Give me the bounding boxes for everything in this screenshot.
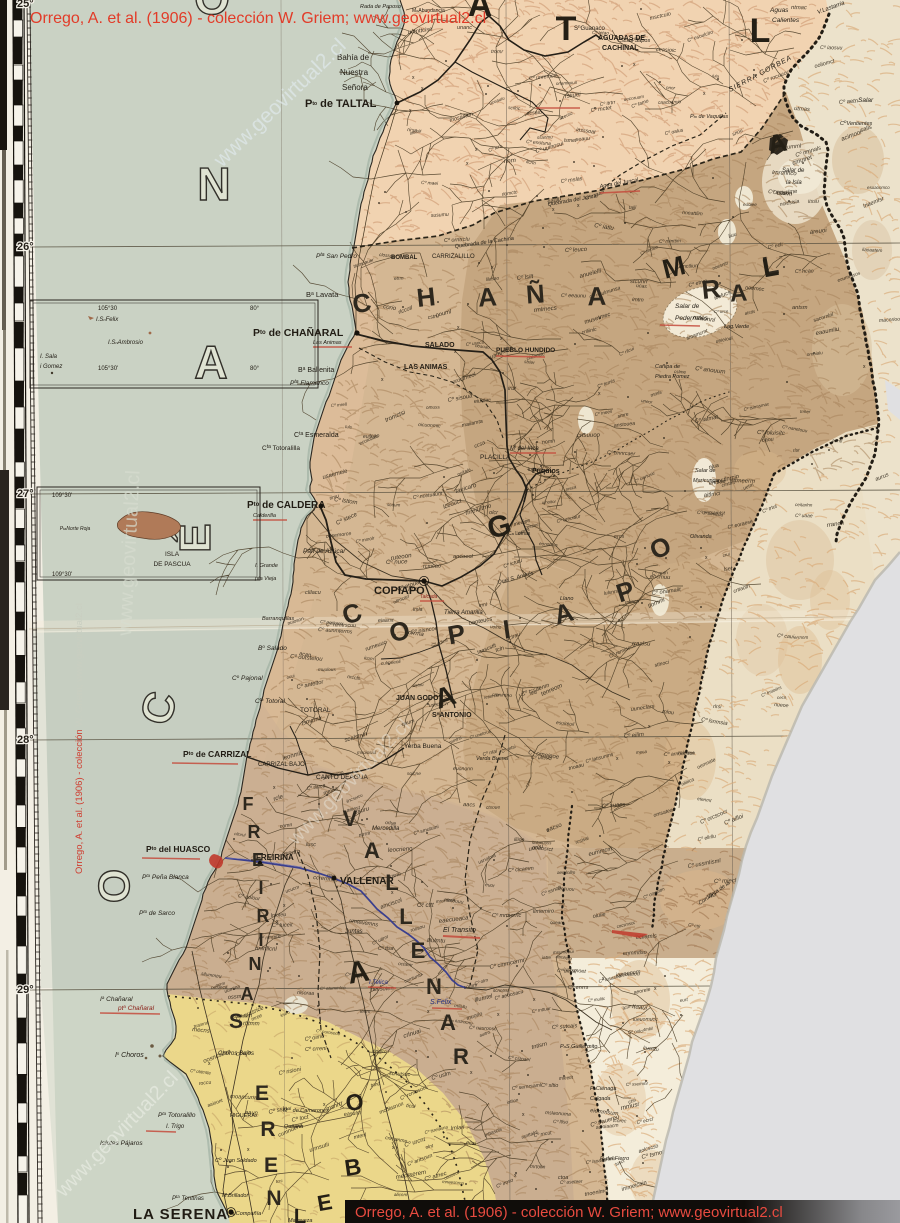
svg-text:I.SnAmbrosio: I.SnAmbrosio [108, 340, 144, 346]
svg-text:80°: 80° [250, 306, 260, 312]
svg-text:T: T [556, 10, 577, 48]
svg-text:Nuestra: Nuestra [340, 68, 369, 77]
svg-text:auntl: auntl [832, 438, 843, 444]
svg-text:Pto del HUASCO: Pto del HUASCO [146, 844, 211, 854]
svg-text:Yerba Buena: Yerba Buena [404, 743, 442, 750]
svg-text:caacuamio: caacuamio [658, 99, 682, 106]
svg-text:aacs: aacs [463, 802, 475, 809]
svg-text:L: L [294, 1206, 306, 1223]
svg-text:Maricunga: Maricunga [693, 478, 719, 484]
svg-text:Ñ: Ñ [525, 278, 546, 309]
svg-text:aemlnllm: aemlnllm [557, 870, 576, 875]
svg-text:Barranquillas: Barranquillas [262, 616, 294, 622]
svg-text:Salar de: Salar de [675, 303, 700, 310]
svg-text:Cº cttt: Cº cttt [417, 902, 434, 909]
svg-text:E: E [255, 1082, 269, 1105]
svg-text:I.SnFelix: I.SnFelix [96, 317, 119, 323]
svg-text:Las Animas: Las Animas [313, 340, 342, 346]
svg-text:N: N [249, 954, 262, 974]
svg-text:rinm: rinm [504, 157, 517, 165]
svg-text:rraalsu: rraalsu [632, 641, 651, 648]
svg-text:Co Juan Soldado: Co Juan Soldado [215, 1156, 257, 1164]
svg-text:ecsi: ecsi [466, 1140, 477, 1147]
svg-text:iliioe: iliioe [514, 837, 525, 843]
svg-text:Cº enrrs: Cº enrrs [568, 984, 589, 991]
svg-text:N: N [426, 974, 442, 999]
svg-text:BOMBAL: BOMBAL [391, 255, 418, 261]
svg-text:la Isla: la Isla [786, 180, 802, 186]
svg-text:soicne: soicne [407, 771, 421, 777]
svg-text:oauou: oauou [625, 971, 640, 978]
svg-text:imtm: imtm [632, 297, 644, 304]
svg-text:ilaoaatem: ilaoaatem [862, 247, 883, 253]
svg-text:Aguas: Aguas [769, 7, 789, 14]
svg-text:Cº cuion: Cº cuion [773, 190, 792, 197]
svg-text:antsm: antsm [792, 305, 808, 311]
svg-text:tcorec: tcorec [613, 1118, 627, 1124]
svg-text:Puquios: Puquios [532, 468, 560, 475]
svg-text:Verda Buena: Verda Buena [476, 756, 508, 762]
svg-text:eros: eros [614, 534, 625, 540]
svg-text:Salar de: Salar de [695, 468, 716, 474]
svg-text:nueoe: nueoe [774, 702, 789, 709]
svg-text:Cº nntn: Cº nntn [652, 570, 669, 577]
svg-text:scaum: scaum [387, 502, 401, 507]
svg-text:Ml del Inca: Ml del Inca [510, 444, 539, 452]
svg-text:pta Vieja: pta Vieja [254, 576, 276, 582]
svg-text:nnor: nnor [666, 85, 676, 90]
svg-text:Cº eeaunu: Cº eeaunu [561, 293, 586, 299]
svg-text:lnioteu: lnioteu [271, 912, 287, 919]
svg-text:etrm: etrm [394, 276, 404, 282]
svg-text:R: R [248, 822, 261, 842]
svg-text:Pedernales: Pedernales [675, 315, 709, 322]
svg-text:iuia: iuia [712, 73, 720, 79]
svg-text:A: A [440, 1010, 456, 1035]
svg-text:alicnm: alicnm [394, 1192, 408, 1197]
svg-text:Orrego, A. et al. (1906) - col: Orrego, A. et al. (1906) - colección W. … [30, 10, 486, 27]
svg-text:crtsuuoo: crtsuuoo [577, 433, 601, 439]
svg-text:rlsr: rlsr [793, 448, 801, 454]
svg-text:Orrego, A. et al. (1906) - col: Orrego, A. et al. (1906) - colección W. … [355, 1204, 783, 1221]
svg-text:Tierra Amarilla: Tierra Amarilla [444, 610, 483, 616]
svg-text:ettmeerm: ettmeerm [730, 478, 755, 485]
svg-text:muulous: muulous [318, 667, 336, 672]
svg-text:Ia Chañaral: Ia Chañaral [100, 995, 133, 1003]
svg-text:A: A [477, 281, 498, 312]
svg-text:errnnm: errnnm [794, 635, 809, 640]
svg-text:cmnintno: cmnintno [492, 692, 512, 699]
svg-text:I.Telica: I.Telica [369, 980, 388, 986]
svg-text:El Transito: El Transito [443, 927, 476, 934]
svg-text:irur: irur [508, 386, 518, 392]
svg-text:E: E [252, 850, 264, 870]
svg-text:Mercedilla: Mercedilla [372, 826, 400, 832]
svg-text:PLACILLA: PLACILLA [480, 454, 511, 461]
svg-text:Cº ttsa: Cº ttsa [378, 946, 394, 952]
svg-text:A: A [241, 984, 254, 1004]
svg-text:tuls: tuls [345, 424, 353, 430]
svg-text:trmer: trmer [800, 409, 811, 414]
svg-text:ancoeol: ancoeol [453, 554, 474, 560]
svg-text:Pto de CHAÑARAL: Pto de CHAÑARAL [253, 326, 344, 339]
svg-text:ceitarlnn: ceitarlnn [795, 502, 813, 508]
svg-text:Piedra Pomez: Piedra Pomez [655, 374, 690, 380]
svg-text:Choros Bajos: Choros Bajos [218, 1051, 254, 1057]
svg-text:i Gomez: i Gomez [40, 364, 62, 370]
svg-text:rcmcao: rcmcao [423, 563, 441, 570]
svg-text:Cº minttim: Cº minttim [659, 238, 681, 245]
svg-text:Talcada: Talcada [420, 594, 438, 600]
svg-text:80°: 80° [250, 366, 260, 372]
svg-text:DE PASCUA: DE PASCUA [153, 561, 191, 568]
svg-text:stcunrr: stcunrr [630, 279, 649, 285]
svg-text:26°: 26° [17, 241, 34, 253]
svg-text:utmas: utmas [794, 106, 810, 113]
svg-text:Cº utissel: Cº utissel [531, 755, 553, 761]
svg-text:Juntas: Juntas [344, 929, 363, 935]
svg-text:esuaonmco: esuaonmco [867, 185, 890, 190]
svg-text:A: A [364, 838, 380, 863]
svg-text:28°: 28° [17, 734, 34, 746]
svg-text:R: R [260, 1118, 275, 1141]
svg-text:tromr: tromr [491, 49, 503, 55]
svg-text:euononn: euononn [453, 766, 473, 772]
svg-text:clilacu: clilacu [305, 590, 322, 596]
svg-text:itcnntrsl: itcnntrsl [493, 988, 510, 993]
svg-text:mrtolm: mrtolm [530, 1164, 545, 1171]
svg-text:29°: 29° [17, 984, 34, 996]
svg-text:E: E [264, 1154, 278, 1177]
svg-text:ienm: ienm [360, 1009, 370, 1015]
svg-text:nisoraa: nisoraa [297, 990, 314, 997]
svg-text:Cº ltlsu: Cº ltlsu [553, 1119, 569, 1126]
svg-text:I: I [258, 930, 263, 950]
svg-text:LA SERENA: LA SERENA [133, 1206, 228, 1223]
svg-text:N: N [266, 1187, 281, 1210]
svg-text:S.Felix: S.Felix [430, 999, 452, 1006]
svg-text:Cº mrmerric: Cº mrmerric [492, 912, 521, 919]
svg-text:lmlarl: lmlarl [451, 1125, 466, 1132]
svg-text:O: O [90, 869, 139, 903]
svg-text:iissu: iissu [808, 199, 819, 205]
svg-text:lllulmtu: lllulmtu [427, 938, 446, 945]
svg-text:Cº uaae: Cº uaae [795, 513, 813, 519]
svg-text:iatre: iatre [542, 955, 551, 960]
svg-text:Cº atummlcn: Cº atummlcn [320, 985, 346, 991]
svg-text:A: A [729, 279, 748, 307]
svg-text:enmmtlso: enmmtlso [623, 950, 647, 957]
svg-text:PaS.Guillermito: PaS.Guillermito [560, 1044, 597, 1050]
svg-text:Señora: Señora [342, 83, 368, 92]
svg-text:Cañipa de: Cañipa de [655, 364, 680, 370]
svg-text:lmla: lmla [413, 607, 423, 613]
svg-text:ttncuou: ttncuou [558, 886, 575, 893]
svg-text:LAS ANIMAS: LAS ANIMAS [404, 364, 448, 371]
svg-text:E: E [411, 938, 426, 963]
svg-text:euoiee: euoiee [743, 202, 757, 207]
svg-text:Cº leuco: Cº leuco [565, 246, 588, 254]
svg-text:Cº ncao: Cº ncao [795, 268, 814, 275]
svg-text:PUEBLO HUNDIDO: PUEBLO HUNDIDO [496, 347, 555, 354]
svg-text:R: R [453, 1044, 469, 1069]
svg-text:Orrego, A. et al. (1906) - col: Orrego, A. et al. (1906) - colección W. … [74, 603, 85, 874]
svg-text:ceasioic: ceasioic [656, 47, 676, 54]
svg-text:llmemiro: llmemiro [533, 909, 554, 915]
svg-text:Salar de: Salar de [782, 168, 805, 174]
svg-text:seauu: seauu [576, 136, 591, 143]
svg-text:Cº sltio: Cº sltio [541, 1082, 558, 1089]
svg-text:Cº urce: Cº urce [714, 309, 729, 314]
svg-text:Pto de CALDERA: Pto de CALDERA [247, 500, 325, 511]
svg-text:Lag.Verde: Lag.Verde [724, 324, 749, 330]
svg-text:lset: lset [724, 566, 734, 573]
svg-text:TOTORAL: TOTORAL [300, 707, 331, 714]
svg-text:rlrsi: rlrsi [713, 704, 722, 710]
svg-text:ticui: ticui [406, 1103, 417, 1110]
svg-text:uolno: uolno [490, 624, 502, 630]
svg-text:H: H [415, 281, 437, 313]
svg-text:oueam: oueam [550, 920, 564, 925]
svg-text:ISLA: ISLA [165, 551, 180, 558]
svg-text:Ba Lavata: Ba Lavata [306, 290, 339, 299]
svg-text:taiii: taiii [629, 205, 637, 211]
svg-text:S: S [229, 1010, 243, 1033]
svg-text:omuss: omuss [426, 404, 441, 410]
svg-text:CARRIZAL BAJO: CARRIZAL BAJO [258, 762, 305, 768]
svg-text:I. Grande: I. Grande [255, 563, 278, 569]
svg-text:Cº crrenl: Cº crrenl [305, 1045, 328, 1053]
svg-text:109°30': 109°30' [52, 493, 72, 499]
svg-text:105°30': 105°30' [98, 366, 118, 372]
svg-text:Pto de CARRIZAL: Pto de CARRIZAL [183, 749, 252, 759]
svg-text:109°30': 109°30' [52, 572, 72, 578]
svg-text:A: A [194, 336, 227, 388]
svg-text:I. Trigo: I. Trigo [166, 1124, 185, 1130]
svg-text:A: A [587, 281, 607, 312]
svg-text:euilnao: euilnao [363, 433, 380, 440]
svg-text:L: L [750, 12, 771, 50]
svg-text:ntmac: ntmac [791, 5, 807, 11]
svg-text:F: F [243, 794, 254, 814]
svg-text:105°30: 105°30 [98, 306, 118, 312]
svg-text:cecn: cecn [777, 695, 787, 700]
svg-text:Co Pajonal: Co Pajonal [232, 674, 263, 682]
svg-text:R: R [700, 273, 722, 305]
svg-text:SALADO: SALADO [425, 342, 455, 349]
svg-text:27°: 27° [17, 488, 34, 500]
svg-text:CARRIZALILLO: CARRIZALILLO [432, 254, 475, 260]
svg-text:pta Chañaral: pta Chañaral [117, 1004, 155, 1012]
svg-text:L: L [399, 904, 412, 929]
svg-text:Calderilla: Calderilla [253, 513, 276, 519]
svg-text:M.Brillador: M.Brillador [222, 1193, 249, 1199]
svg-text:ctoa: ctoa [558, 1175, 568, 1181]
svg-text:CACHINAL: CACHINAL [602, 45, 639, 52]
svg-text:COPIAPO: COPIAPO [374, 585, 425, 597]
svg-text:scilric: scilric [508, 105, 521, 112]
svg-text:Cº iaosuu: Cº iaosuu [820, 45, 843, 51]
svg-text:iueuomucc: iueuomucc [633, 1017, 658, 1023]
svg-text:lusc: lusc [306, 842, 316, 848]
svg-text:R: R [257, 906, 270, 926]
svg-text:25°: 25° [17, 0, 34, 10]
svg-text:Is Choros: Is Choros [115, 1051, 144, 1059]
svg-text:Cº maei: Cº maei [421, 180, 439, 187]
svg-text:ctsoue: ctsoue [486, 804, 501, 811]
svg-text:Pan de Azúcar: Pan de Azúcar [303, 548, 346, 555]
svg-text:I. Sala: I. Sala [40, 354, 58, 360]
svg-text:Olivanda: Olivanda [690, 534, 712, 540]
svg-text:Colgada: Colgada [590, 1096, 611, 1102]
svg-text:Calientes: Calientes [772, 17, 800, 24]
svg-text:Salar: Salar [858, 97, 874, 104]
svg-text:Cº loluisitc: Cº loluisitc [757, 429, 785, 437]
svg-text:HIGUERA: HIGUERA [230, 1113, 255, 1119]
svg-text:L: L [385, 870, 398, 895]
svg-text:V: V [343, 806, 358, 831]
svg-text:scnutsac: scnutsac [389, 1071, 411, 1078]
svg-text:Quitana: Quitana [284, 1124, 303, 1130]
svg-text:I: I [258, 878, 263, 898]
svg-text:Cta Totoral: Cta Totoral [255, 697, 285, 705]
svg-text:susumu: susumu [431, 212, 449, 219]
